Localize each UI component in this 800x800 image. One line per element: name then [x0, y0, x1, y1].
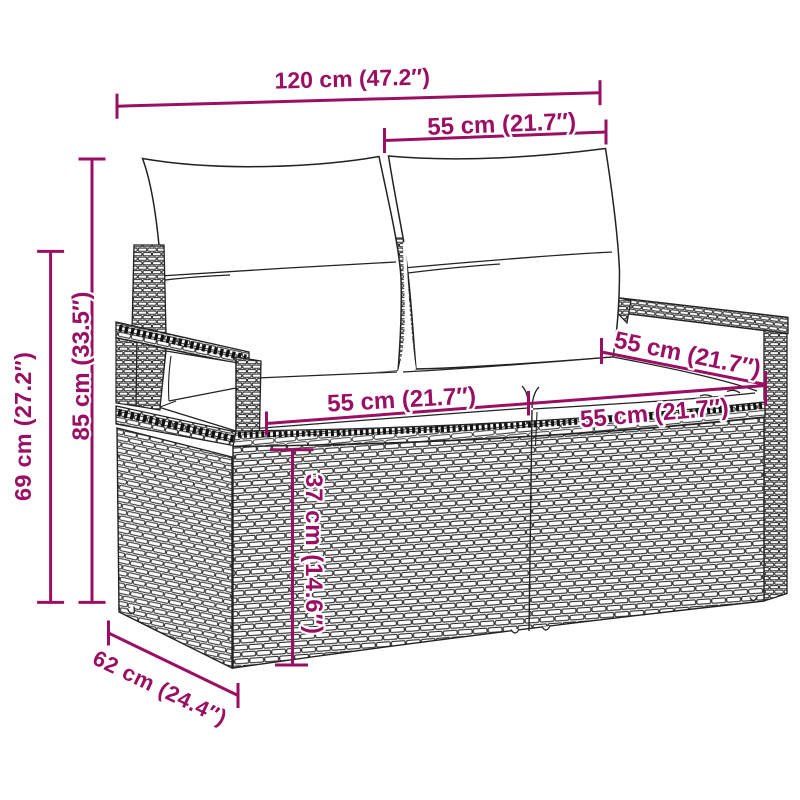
svg-text:55 cm (21.7″): 55 cm (21.7″): [427, 108, 577, 141]
svg-text:85 cm (33.5″): 85 cm (33.5″): [68, 292, 95, 441]
svg-text:69 cm (27.2″): 69 cm (27.2″): [10, 352, 36, 501]
svg-text:37 cm (14.6″): 37 cm (14.6″): [300, 474, 327, 634]
svg-text:120 cm (47.2″): 120 cm (47.2″): [274, 63, 430, 93]
